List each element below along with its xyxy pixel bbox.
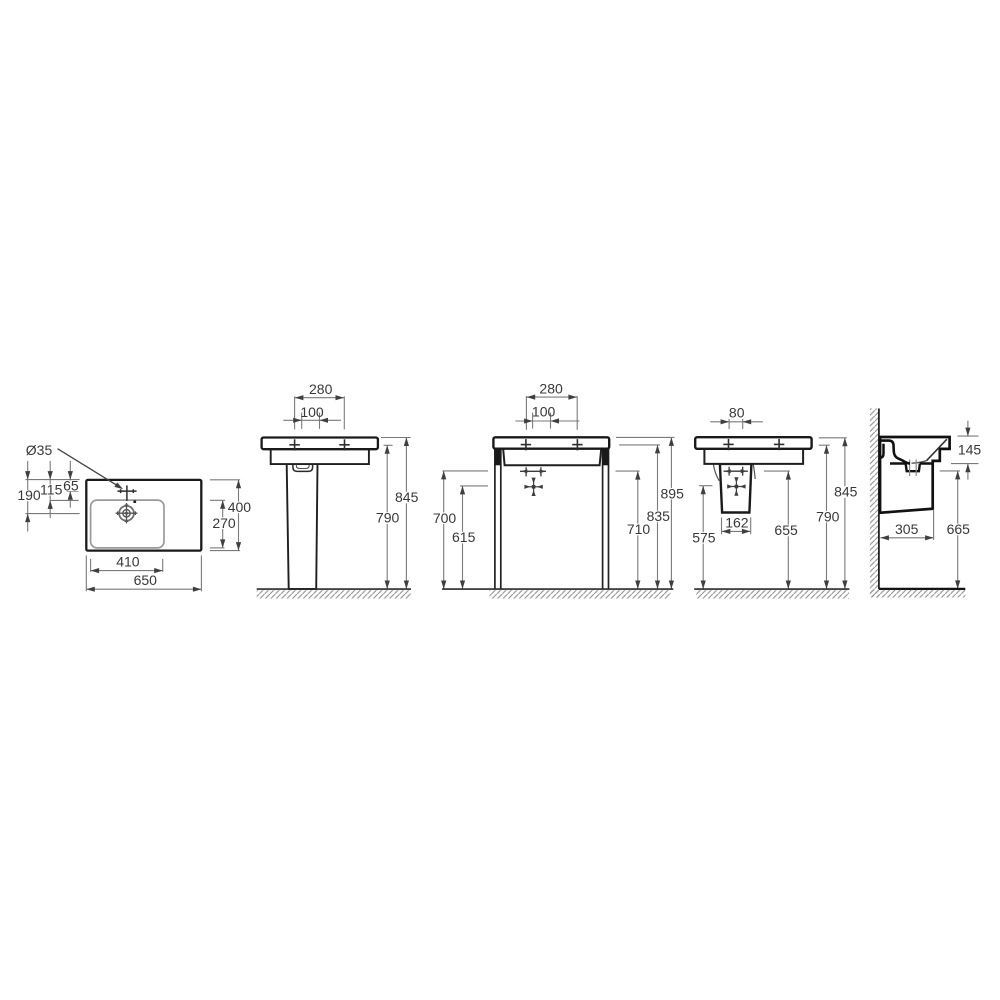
- svg-text:305: 305: [895, 521, 919, 537]
- svg-text:100: 100: [300, 404, 324, 420]
- svg-text:162: 162: [725, 514, 749, 530]
- svg-text:100: 100: [532, 404, 556, 420]
- svg-text:790: 790: [376, 510, 400, 526]
- svg-text:790: 790: [816, 508, 840, 524]
- svg-text:700: 700: [433, 510, 457, 526]
- svg-text:575: 575: [692, 530, 716, 546]
- svg-text:115: 115: [40, 481, 63, 497]
- svg-text:270: 270: [212, 515, 236, 531]
- svg-text:400: 400: [228, 499, 252, 515]
- svg-text:665: 665: [947, 521, 971, 537]
- svg-text:190: 190: [17, 487, 41, 503]
- svg-text:65: 65: [63, 477, 79, 493]
- svg-text:615: 615: [452, 529, 476, 545]
- svg-text:845: 845: [395, 489, 419, 505]
- svg-text:280: 280: [309, 381, 333, 397]
- svg-text:845: 845: [834, 484, 858, 500]
- svg-text:145: 145: [958, 442, 982, 458]
- svg-text:655: 655: [774, 522, 798, 538]
- svg-text:895: 895: [661, 485, 685, 501]
- svg-text:Ø35: Ø35: [26, 442, 53, 458]
- svg-text:80: 80: [729, 405, 745, 421]
- svg-text:835: 835: [647, 508, 671, 524]
- svg-text:410: 410: [116, 553, 140, 569]
- svg-text:280: 280: [539, 380, 563, 396]
- svg-text:650: 650: [134, 572, 158, 588]
